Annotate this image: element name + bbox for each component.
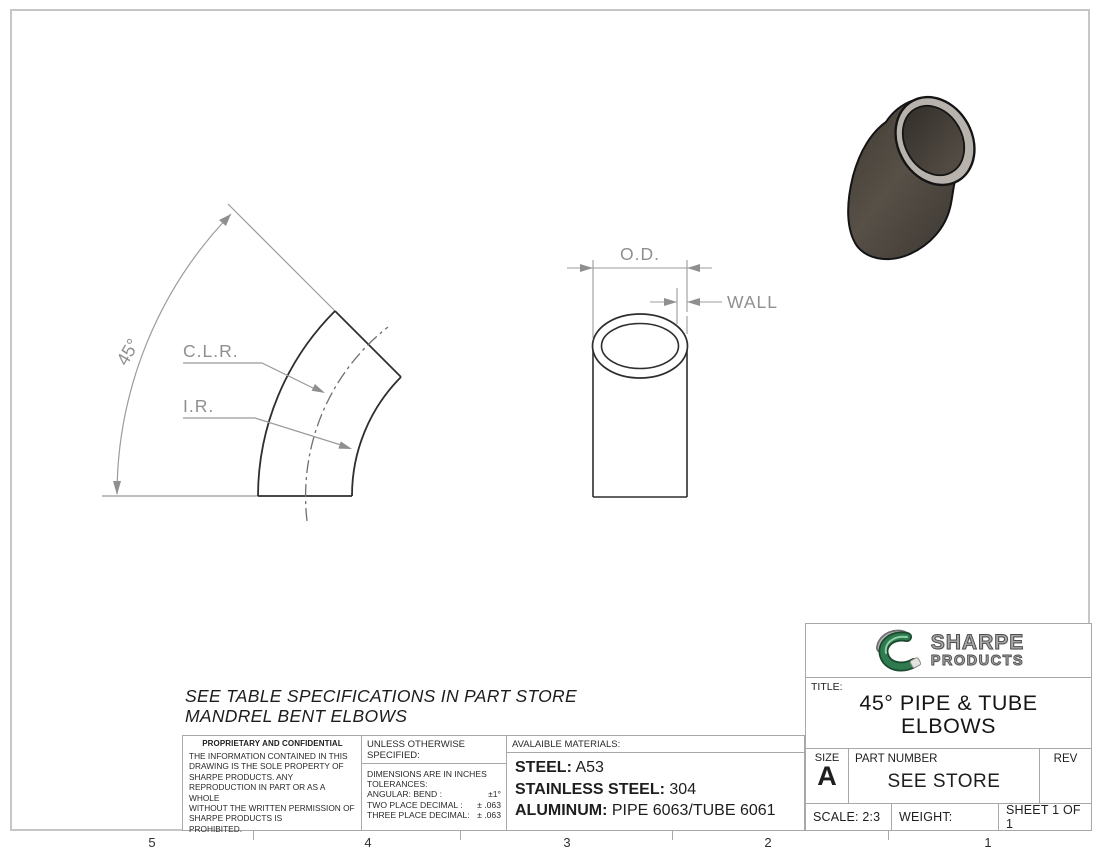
tolerance-value: ± .063 bbox=[477, 800, 501, 810]
tolerance-label: ANGULAR: BEND : bbox=[367, 789, 442, 799]
arrowhead bbox=[113, 481, 121, 495]
brand-name-top: SHARPE bbox=[931, 632, 1025, 653]
zone-number: 5 bbox=[142, 835, 162, 850]
spec-note-line1: SEE TABLE SPECIFICATIONS IN PART STORE bbox=[185, 686, 577, 706]
materials-cell: AVALAIBLE MATERIALS: STEEL: A53 STAINLES… bbox=[506, 736, 804, 830]
size-value: A bbox=[806, 764, 848, 788]
od-label: O.D. bbox=[620, 244, 660, 264]
part-number-label: PART NUMBER bbox=[855, 753, 937, 765]
rev-label: REV bbox=[1040, 753, 1091, 765]
zone-number: 4 bbox=[358, 835, 378, 850]
elbow-3d-render bbox=[848, 83, 990, 259]
clr-label: C.L.R. bbox=[183, 341, 239, 361]
tube-inner-ellipse bbox=[602, 324, 679, 369]
material-row: STAINLESS STEEL: 304 bbox=[515, 779, 798, 801]
arrowhead bbox=[687, 298, 700, 306]
drawing-title-line1: 45° PIPE & TUBE bbox=[806, 692, 1091, 715]
elbow-outer-arc bbox=[258, 311, 335, 496]
size-part-rev-row: SIZE A PART NUMBER SEE STORE REV bbox=[806, 749, 1091, 804]
material-label: STAINLESS STEEL: bbox=[515, 781, 665, 798]
material-value: PIPE 6063/TUBE 6061 bbox=[612, 802, 776, 819]
title-cell: TITLE: 45° PIPE & TUBE ELBOWS bbox=[806, 678, 1091, 749]
tolerance-row: THREE PLACE DECIMAL: ± .063 bbox=[367, 810, 501, 820]
scale-weight-sheet-row: SCALE: 2:3 WEIGHT: SHEET 1 OF 1 bbox=[806, 804, 1091, 830]
zone-number: 1 bbox=[978, 835, 998, 850]
material-label: ALUMINUM: bbox=[515, 802, 607, 819]
arrowhead bbox=[338, 441, 352, 449]
tolerance-row: ANGULAR: BEND : ±1° bbox=[367, 789, 501, 799]
notes-table: PROPRIETARY AND CONFIDENTIAL THE INFORMA… bbox=[182, 735, 805, 831]
material-row: STEEL: A53 bbox=[515, 757, 798, 779]
arrowhead bbox=[664, 298, 677, 306]
weight-cell: WEIGHT: bbox=[891, 804, 998, 830]
materials-body: STEEL: A53 STAINLESS STEEL: 304 ALUMINUM… bbox=[507, 753, 804, 822]
arrowhead bbox=[312, 384, 325, 393]
zone-tick bbox=[888, 831, 889, 840]
tolerances-body: DIMENSIONS ARE IN INCHES TOLERANCES: ANG… bbox=[362, 764, 506, 820]
ir-label: I.R. bbox=[183, 396, 214, 416]
sharpe-tube-s-icon bbox=[873, 628, 925, 674]
clr-leader bbox=[183, 363, 313, 388]
tolerances-title: UNLESS OTHERWISE SPECIFIED: bbox=[362, 736, 506, 764]
materials-title: AVALAIBLE MATERIALS: bbox=[507, 736, 804, 753]
rev-cell: REV bbox=[1039, 749, 1091, 803]
zone-tick bbox=[672, 831, 673, 840]
proprietary-body: THE INFORMATION CONTAINED IN THIS DRAWIN… bbox=[189, 751, 356, 834]
tolerances-cell: UNLESS OTHERWISE SPECIFIED: DIMENSIONS A… bbox=[361, 736, 506, 830]
elbow-centerline bbox=[306, 327, 388, 521]
brand-logo: SHARPE PRODUCTS bbox=[806, 624, 1091, 678]
zone-number: 3 bbox=[557, 835, 577, 850]
zone-tick bbox=[253, 831, 254, 840]
tolerance-label: THREE PLACE DECIMAL: bbox=[367, 810, 470, 820]
ir-leader bbox=[183, 418, 341, 445]
angle-extension-line bbox=[228, 204, 338, 314]
material-value: 304 bbox=[669, 781, 696, 798]
tolerance-label: TWO PLACE DECIMAL : bbox=[367, 800, 463, 810]
drawing-title-line2: ELBOWS bbox=[806, 715, 1091, 738]
title-block: SHARPE PRODUCTS TITLE: 45° PIPE & TUBE E… bbox=[805, 623, 1092, 831]
spec-note: SEE TABLE SPECIFICATIONS IN PART STORE M… bbox=[185, 686, 577, 726]
tolerance-units-line: DIMENSIONS ARE IN INCHES bbox=[367, 769, 501, 779]
tolerance-heading-line: TOLERANCES: bbox=[367, 779, 501, 789]
material-value: A53 bbox=[575, 759, 603, 776]
zone-number: 2 bbox=[758, 835, 778, 850]
elbow-inner-arc bbox=[352, 377, 401, 496]
brand-wordmark: SHARPE PRODUCTS bbox=[931, 632, 1025, 669]
scale-cell: SCALE: 2:3 bbox=[806, 804, 891, 830]
tolerance-value: ± .063 bbox=[477, 810, 501, 820]
drawing-sheet: 45° C.L.R. I.R. O.D. bbox=[0, 0, 1100, 850]
spec-note-line2: MANDREL BENT ELBOWS bbox=[185, 706, 577, 726]
proprietary-cell: PROPRIETARY AND CONFIDENTIAL THE INFORMA… bbox=[183, 736, 361, 830]
wall-label: WALL bbox=[727, 292, 778, 312]
sheet-cell: SHEET 1 OF 1 bbox=[998, 804, 1091, 830]
tube-section-view: O.D. WALL bbox=[567, 244, 778, 497]
material-label: STEEL: bbox=[515, 759, 572, 776]
brand-name-bottom: PRODUCTS bbox=[931, 654, 1025, 669]
tolerance-row: TWO PLACE DECIMAL : ± .063 bbox=[367, 800, 501, 810]
size-cell: SIZE A bbox=[806, 749, 848, 803]
proprietary-title: PROPRIETARY AND CONFIDENTIAL bbox=[189, 739, 356, 748]
zone-tick bbox=[460, 831, 461, 840]
arrowhead bbox=[687, 264, 700, 272]
tolerance-value: ±1° bbox=[488, 789, 501, 799]
part-number-cell: PART NUMBER SEE STORE bbox=[848, 749, 1039, 803]
material-row: ALUMINUM: PIPE 6063/TUBE 6061 bbox=[515, 800, 798, 822]
arrowhead bbox=[580, 264, 593, 272]
part-number-value: SEE STORE bbox=[849, 771, 1039, 793]
drawing-title: 45° PIPE & TUBE ELBOWS bbox=[806, 692, 1091, 738]
elbow-angle-view: 45° C.L.R. I.R. bbox=[102, 204, 401, 521]
